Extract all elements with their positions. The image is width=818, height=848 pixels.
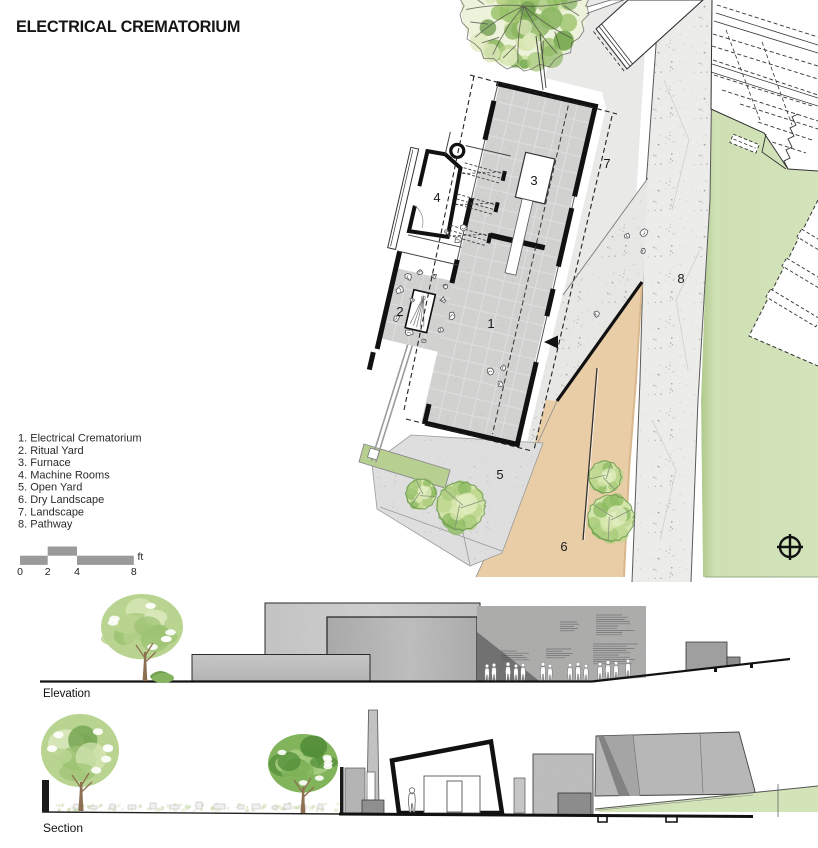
svg-text:Elevation: Elevation bbox=[43, 688, 90, 700]
svg-text:5. Open Yard: 5. Open Yard bbox=[18, 482, 82, 494]
svg-text:ft: ft bbox=[138, 551, 144, 563]
svg-text:8: 8 bbox=[677, 271, 684, 286]
svg-text:6. Dry Landscape: 6. Dry Landscape bbox=[18, 494, 104, 506]
svg-text:8: 8 bbox=[131, 566, 137, 578]
svg-text:2. Ritual Yard: 2. Ritual Yard bbox=[18, 445, 84, 457]
svg-text:3: 3 bbox=[530, 173, 537, 188]
svg-text:ELECTRICAL CREMATORIUM: ELECTRICAL CREMATORIUM bbox=[16, 18, 240, 36]
svg-text:2: 2 bbox=[45, 566, 51, 578]
svg-text:0: 0 bbox=[17, 566, 23, 578]
svg-text:4. Machine Rooms: 4. Machine Rooms bbox=[18, 469, 110, 481]
svg-text:2: 2 bbox=[396, 304, 403, 319]
svg-text:4: 4 bbox=[74, 566, 80, 578]
svg-text:Section: Section bbox=[43, 821, 83, 835]
svg-text:7. Landscape: 7. Landscape bbox=[18, 506, 84, 518]
svg-text:1: 1 bbox=[487, 316, 494, 331]
svg-text:8. Pathway: 8. Pathway bbox=[18, 519, 73, 531]
svg-text:7: 7 bbox=[603, 156, 610, 171]
svg-text:1. Electrical Crematorium: 1. Electrical Crematorium bbox=[18, 433, 141, 445]
svg-text:4: 4 bbox=[433, 190, 440, 205]
svg-text:3. Furnace: 3. Furnace bbox=[18, 457, 71, 469]
svg-text:5: 5 bbox=[496, 467, 503, 482]
svg-text:6: 6 bbox=[560, 539, 567, 554]
